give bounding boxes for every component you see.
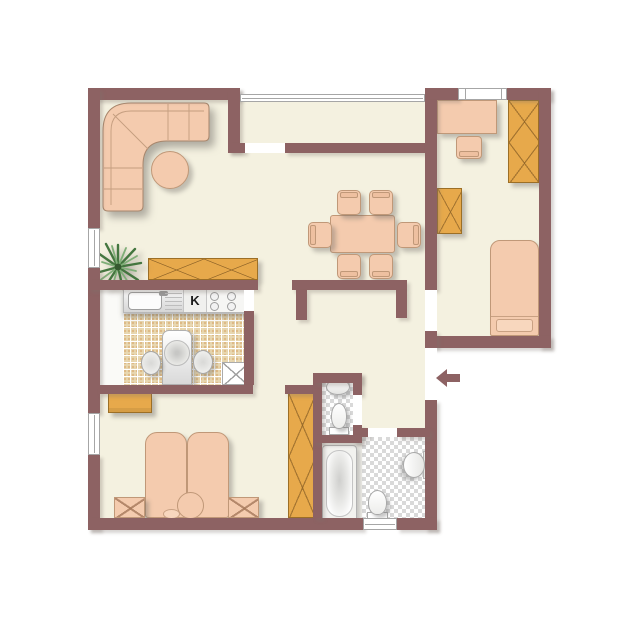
living-room-window xyxy=(88,228,100,268)
wall xyxy=(296,290,307,320)
stove-burner xyxy=(227,292,236,301)
wall xyxy=(88,518,363,530)
wall xyxy=(397,428,430,437)
bath-wash-basin xyxy=(403,452,425,478)
wall xyxy=(292,280,407,290)
dining-chair xyxy=(337,254,361,279)
stove-burner xyxy=(227,302,236,311)
kitchen-chair xyxy=(141,351,161,375)
wall xyxy=(396,290,407,318)
kitchen-counter: K xyxy=(123,289,248,313)
wall xyxy=(313,435,362,443)
floor-plan: K xyxy=(0,0,640,622)
bench xyxy=(108,393,152,413)
bath-toilet-bowl xyxy=(368,490,387,515)
stove-burner xyxy=(210,302,219,311)
wardrobe-bedroom-left xyxy=(288,393,315,518)
wall xyxy=(285,143,425,153)
floor-balcony xyxy=(240,102,425,144)
balcony-railing xyxy=(240,94,425,102)
dining-chair xyxy=(397,222,421,248)
bed-foot-line xyxy=(491,316,538,317)
stove-burner xyxy=(210,292,219,301)
wall xyxy=(397,518,437,530)
dining-chair xyxy=(369,190,393,215)
wc-toilet-bowl xyxy=(331,403,347,429)
sideboard xyxy=(148,258,258,280)
single-bed xyxy=(490,240,539,336)
desk-chair xyxy=(456,136,482,159)
balcony-door xyxy=(245,143,285,153)
dining-chair xyxy=(337,190,361,215)
bed-pillow xyxy=(496,319,533,332)
bedroom-right-door xyxy=(425,290,437,331)
sink-bowl xyxy=(128,292,162,310)
desk xyxy=(437,100,497,134)
kitchen-cabinet-strip xyxy=(100,290,123,385)
wall xyxy=(228,143,245,153)
wall xyxy=(425,331,437,348)
nightstand xyxy=(228,497,259,518)
bed-round-cushion xyxy=(177,492,204,519)
wardrobe-bedroom-right xyxy=(508,100,539,183)
kitchen-chair xyxy=(193,350,213,374)
bathroom-window xyxy=(363,518,397,530)
wall xyxy=(98,385,253,394)
wall xyxy=(244,311,254,385)
wall xyxy=(425,100,437,290)
bedroom-right-window xyxy=(458,88,507,100)
wall xyxy=(88,280,258,290)
wall xyxy=(88,88,100,228)
wall xyxy=(433,336,551,348)
entrance-arrow-icon xyxy=(434,367,462,389)
kitchen-label: K xyxy=(184,291,206,311)
wall xyxy=(539,88,551,348)
wall xyxy=(88,88,240,100)
dining-chair xyxy=(369,254,393,279)
bedroom-left-window xyxy=(88,413,100,455)
wall xyxy=(285,385,315,394)
living-round-table xyxy=(151,151,189,189)
nightstand xyxy=(114,497,145,518)
kitchen-door xyxy=(244,290,254,311)
dining-chair xyxy=(308,222,332,248)
wall xyxy=(313,373,322,518)
wall xyxy=(425,400,437,530)
drainboard-lines xyxy=(165,293,182,310)
dining-table xyxy=(330,215,395,253)
cabinet-bedroom-right xyxy=(437,188,462,234)
wc-door xyxy=(353,395,362,425)
wall xyxy=(353,373,362,395)
kitchen-table-top xyxy=(164,340,190,366)
wall xyxy=(425,88,458,100)
bathtub-basin xyxy=(326,450,353,517)
bathroom-door xyxy=(368,428,397,437)
